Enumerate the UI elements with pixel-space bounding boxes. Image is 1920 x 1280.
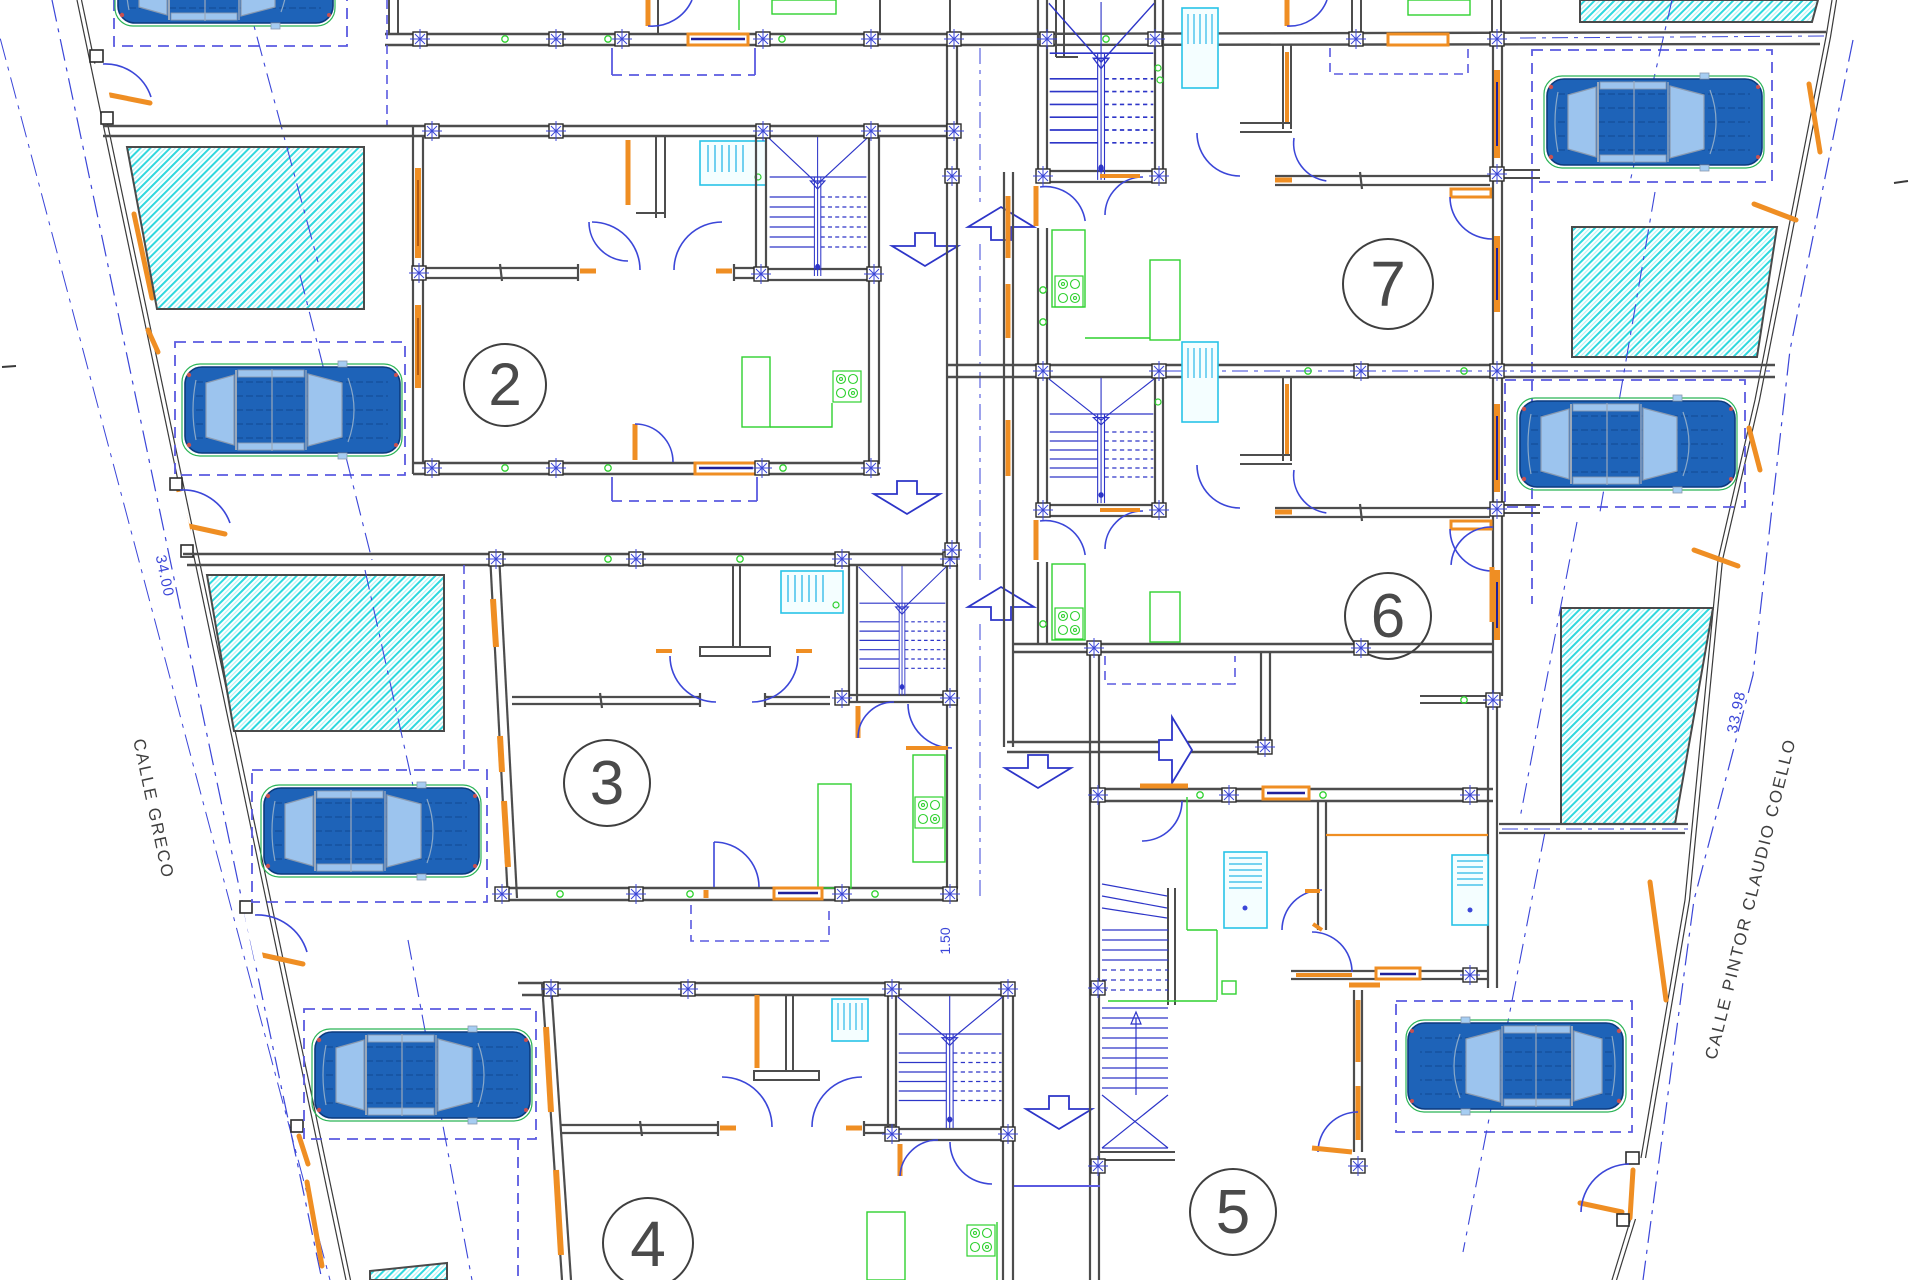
svg-text:5: 5 — [1216, 1178, 1250, 1247]
svg-text:1.50: 1.50 — [937, 927, 953, 954]
svg-text:3: 3 — [590, 749, 624, 818]
svg-text:4: 4 — [630, 1208, 666, 1280]
svg-text:6: 6 — [1371, 582, 1405, 651]
svg-text:2: 2 — [488, 351, 521, 418]
svg-text:7: 7 — [1370, 248, 1406, 320]
